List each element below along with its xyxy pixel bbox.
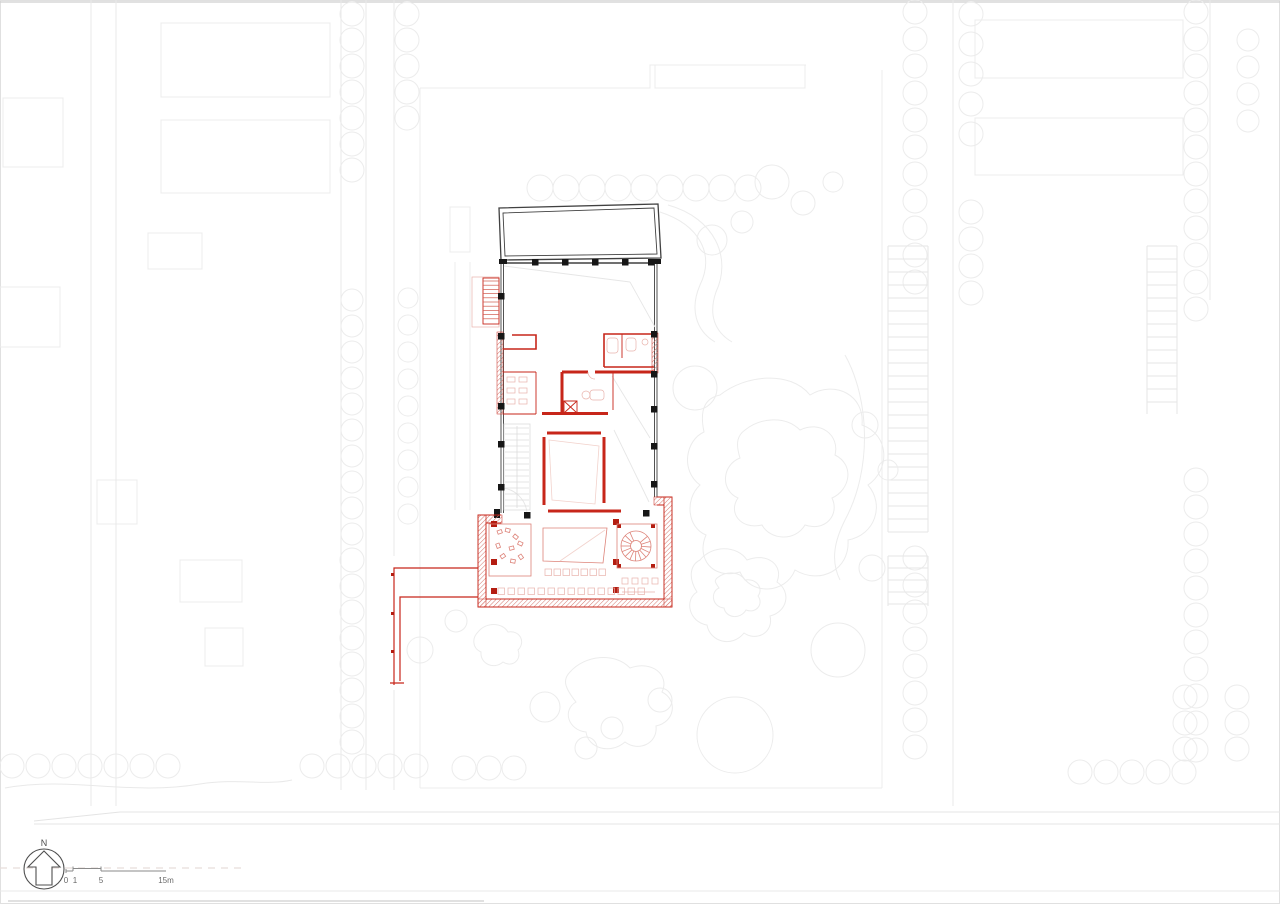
parking-stalls (888, 246, 1177, 606)
site-plan-drawing: N 0 1 5 15m (0, 0, 1280, 904)
structure-columns (491, 259, 661, 594)
garden-landscape (407, 165, 898, 773)
wc-fixture (626, 338, 636, 351)
room-nw-walls (503, 335, 536, 349)
furniture (489, 338, 658, 595)
north-label: N (41, 838, 48, 848)
north-arrow-icon: N (24, 838, 64, 889)
scale-tick-0: 0 (64, 876, 69, 885)
plan-sheet: N 0 1 5 15m (0, 0, 1280, 904)
stair-west (504, 424, 530, 510)
street-lines (0, 0, 1280, 868)
existing-structure (494, 204, 661, 518)
wing-outer-wall (478, 497, 672, 607)
sheet-frame (0, 1, 1280, 904)
shaft (564, 401, 577, 413)
exterior-stair (472, 277, 499, 327)
plan-walls-red (478, 334, 672, 607)
spiral-stair (617, 524, 657, 568)
scale-tick-1: 1 (73, 876, 78, 885)
large-table (543, 528, 607, 563)
scale-bar: 0 1 5 15m (64, 867, 174, 886)
wc-fixture (607, 338, 618, 353)
ramp-path (390, 568, 478, 685)
bathroom-ne-walls (604, 334, 654, 367)
wc-fixture (590, 390, 604, 400)
scale-tick-5: 5 (99, 876, 104, 885)
wing-inner-wall (486, 505, 664, 599)
scale-tick-15: 15m (158, 876, 174, 885)
